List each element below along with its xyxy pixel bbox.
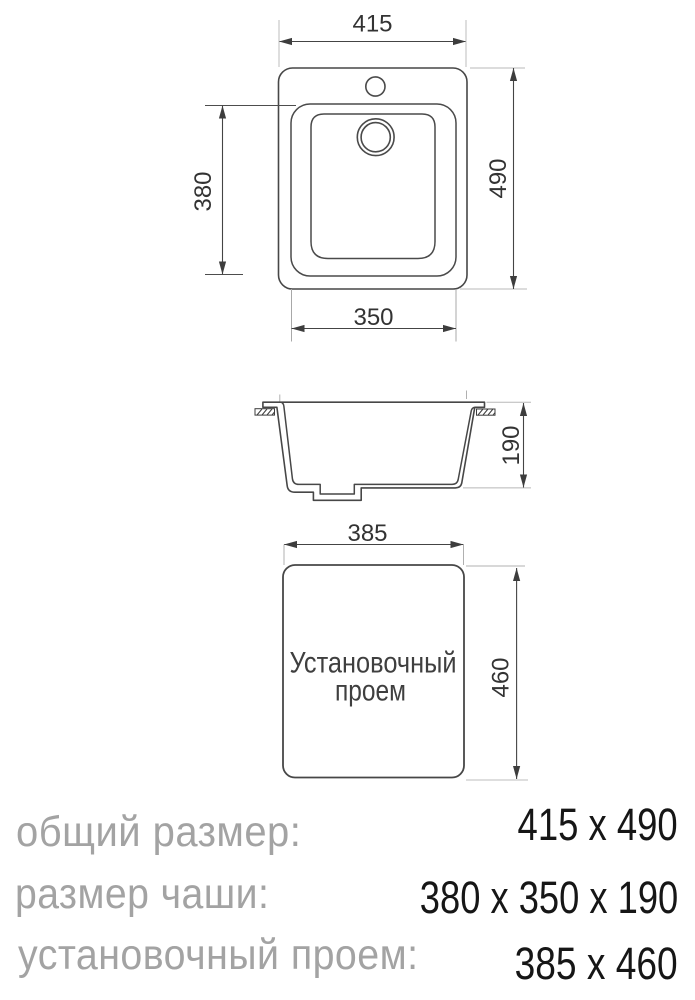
svg-text:490: 490 [485, 158, 512, 198]
svg-text:350: 350 [353, 304, 393, 331]
svg-text:380: 380 [190, 171, 217, 211]
svg-text:385: 385 [347, 520, 387, 547]
svg-text:проем: проем [335, 675, 406, 708]
svg-text:415: 415 [352, 11, 392, 38]
svg-text:460: 460 [488, 657, 515, 697]
svg-text:190: 190 [498, 425, 525, 465]
